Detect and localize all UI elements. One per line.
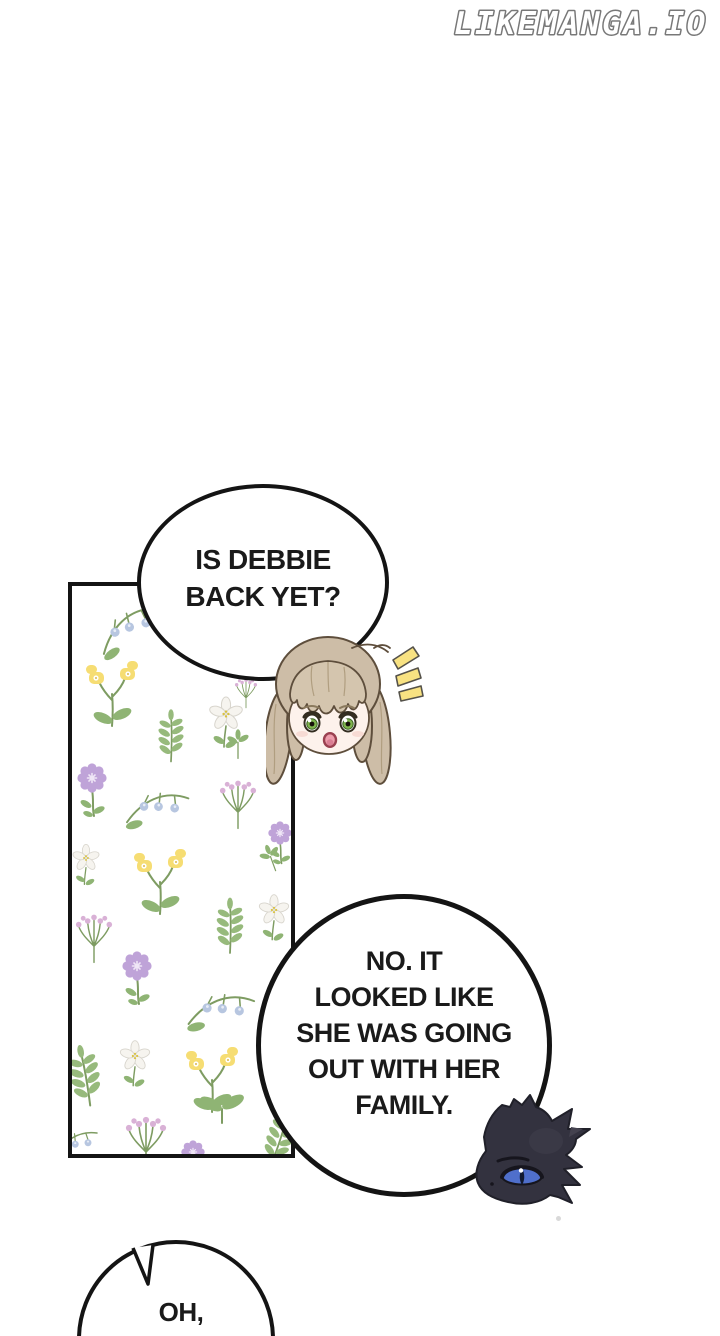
flower-fern — [72, 1042, 106, 1108]
flower-daisy — [208, 697, 243, 750]
chibi-girl-head — [266, 634, 392, 792]
flower-umbel — [126, 1117, 166, 1154]
dragon-head-shade — [529, 1128, 563, 1154]
speech-line: BACK YET? — [185, 578, 340, 615]
flower-bluebell — [185, 986, 255, 1047]
flower-pompom — [122, 951, 151, 1006]
flower-umbel — [76, 915, 112, 963]
flower-yellow — [134, 849, 186, 914]
speech-line: FAMILY. — [355, 1087, 453, 1123]
flower-pompom — [181, 1140, 204, 1154]
flower-fern — [215, 898, 244, 953]
flower-mini-umbel — [235, 679, 257, 708]
flower-bluebell — [123, 786, 188, 842]
speech-line: LOOKED LIKE — [314, 979, 493, 1015]
black-dragon-head — [468, 1089, 598, 1211]
flower-bluebell — [72, 1133, 97, 1154]
flower-yellow — [86, 661, 138, 726]
comic-page[interactable]: IS DEBBIE BACK YET? — [0, 0, 720, 1336]
watermark-text: LIKEMANGA.IO — [454, 6, 708, 42]
site-watermark: LIKEMANGA.IO — [452, 1, 718, 47]
flower-pompom — [77, 763, 106, 818]
speech-line: OUT WITH HER — [308, 1051, 500, 1087]
dragon-nostril — [490, 1182, 494, 1186]
speech-line: OH, — [146, 1297, 216, 1328]
flower-daisy — [72, 844, 100, 886]
ink-speck — [556, 1216, 561, 1221]
girl-mouth — [324, 733, 336, 747]
flower-umbel — [220, 781, 256, 829]
surprise-marks-icon — [391, 644, 431, 702]
speech-line: SHE WAS GOING — [296, 1015, 512, 1051]
flower-daisy — [258, 895, 290, 942]
speech-line: IS DEBBIE — [195, 541, 331, 578]
speech-line: NO. IT — [366, 943, 443, 979]
flower-fern — [157, 709, 185, 761]
flower-daisy — [119, 1041, 151, 1088]
dragon-eye — [502, 1167, 542, 1185]
